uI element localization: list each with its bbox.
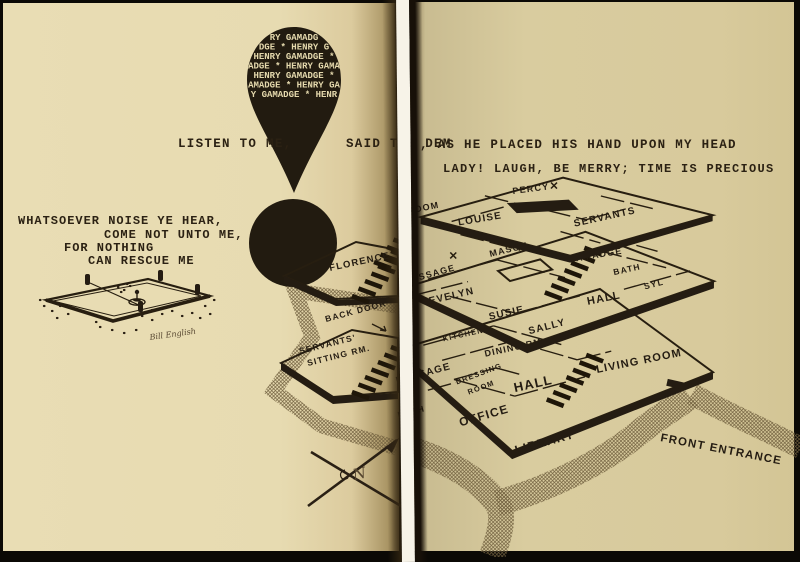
balloon-row: HENRY GAMADGE * (253, 52, 334, 62)
balloon-row: AMADGE * HENRY GA (248, 81, 340, 91)
exclamation-mark: RY GAMADG DGE * HENRY G HENRY GAMADGE * … (247, 27, 341, 193)
room-label-percy: PERCY (512, 181, 550, 196)
room-label-library: LIBRARY (513, 427, 576, 457)
balloon-row: DGE * HENRY G (259, 43, 329, 53)
quote-lady: LADY! LAUGH, BE MERRY; TIME IS PRECIOUS (443, 162, 775, 176)
quote-listen-right: , AS HE PLACED HIS HAND UPON MY HEAD (420, 138, 737, 152)
room-label-servants: SERVANTS (573, 205, 637, 229)
room-label-evelyn: EVELYN (428, 286, 476, 307)
quote-listen-left: LISTEN TO ME, (178, 137, 292, 151)
artist-signature: Bill English (148, 327, 196, 343)
walled-garden: Bill English (40, 270, 214, 342)
room-label-florence: FLORENCE (328, 250, 391, 274)
quote-whatsoever-4: CAN RESCUE ME (88, 254, 195, 268)
garden-post (85, 274, 90, 285)
room-label-louise: LOUISE (457, 210, 503, 228)
stairwell-opening-3 (507, 199, 579, 214)
floor-3-third: ROOM PERCY LOUISE SERVANTS (406, 176, 714, 264)
book-gutter (382, 0, 428, 562)
balloon-row: HENRY GAMADGE * (253, 71, 334, 81)
quote-whatsoever-1: WHATSOEVER NOISE YE HEAR, (18, 214, 223, 228)
exclamation-dot (249, 199, 337, 287)
garden-post (195, 284, 200, 295)
x-mark (551, 182, 557, 188)
gravel-dots (40, 284, 214, 333)
garden-post (138, 301, 143, 312)
room-label-syl: SYL (643, 277, 665, 292)
staircase-ground (547, 354, 604, 406)
compass-north-letter: N (350, 463, 368, 484)
quote-whatsoever-3: FOR NOTHING (64, 241, 154, 255)
balloon-row: Y GAMADGE * HENR (251, 90, 338, 100)
back-door-arrow (372, 324, 386, 331)
balloon-row: RY GAMADG (270, 33, 319, 43)
room-label-bath-2: BATH (612, 261, 641, 277)
garden-post (158, 270, 163, 281)
balloon-row: ADGE * HENRY GAMA (248, 62, 340, 72)
x-mark (450, 252, 456, 258)
quote-whatsoever-2: COME NOT UNTO ME, (104, 228, 243, 242)
